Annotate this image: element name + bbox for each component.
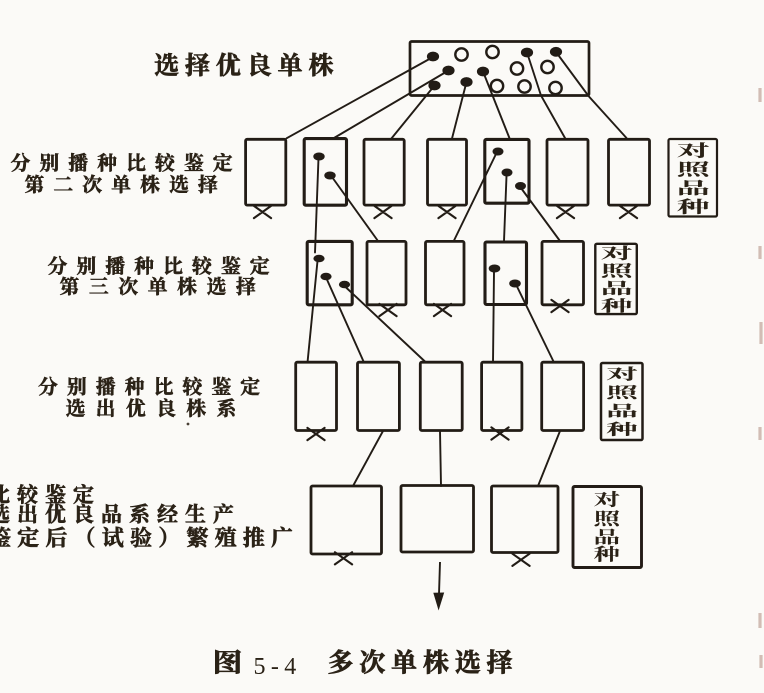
svg-text:5-4: 5-4 <box>254 654 302 680</box>
